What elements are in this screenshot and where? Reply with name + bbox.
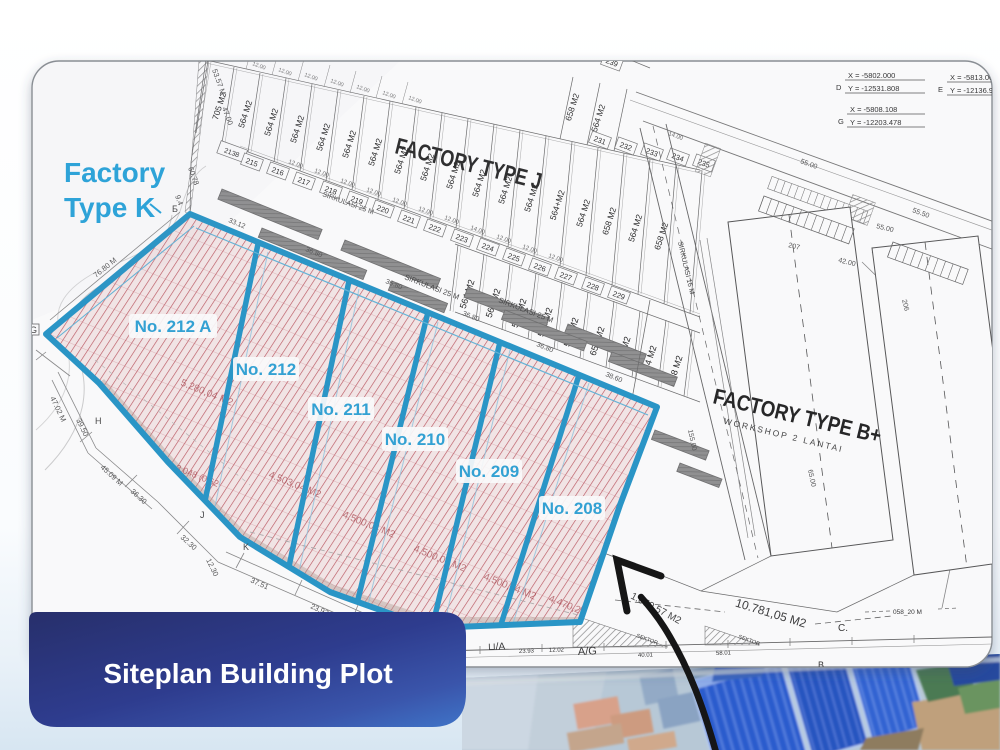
svg-text:Siteplan Building Plot: Siteplan Building Plot [103,658,392,689]
svg-text:Factory: Factory [64,157,166,188]
svg-text:Type K: Type K [64,192,155,223]
